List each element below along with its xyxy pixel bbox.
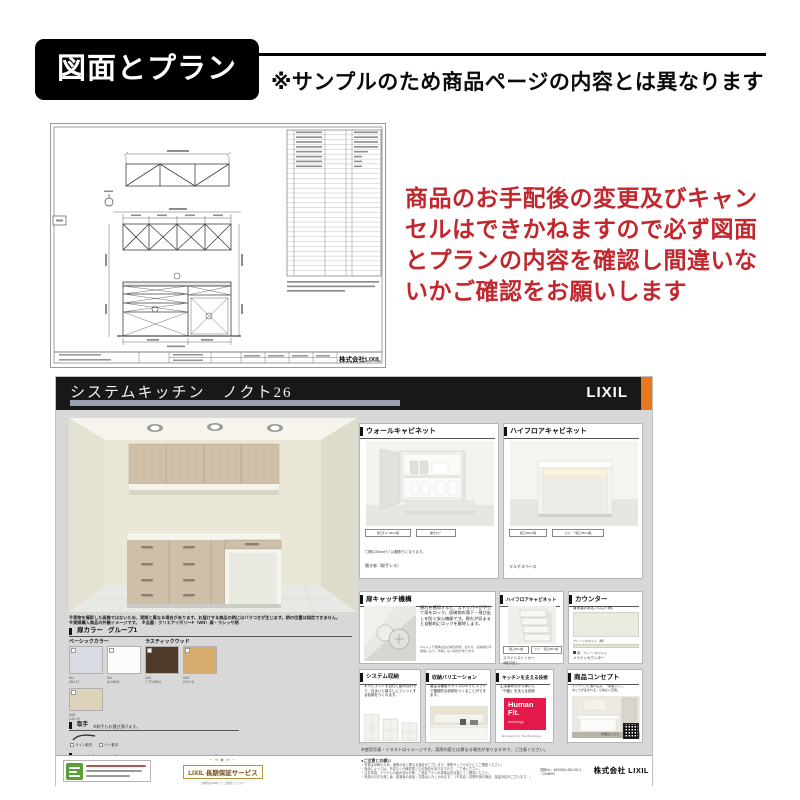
panel-system-storage: システム収納 キャビネットを自在に組み合わせて、住まいと暮らしにフィットする収納… [359,669,421,743]
header-accent-block [641,377,652,410]
counter-lead: 清潔感のあるフロスト柄。 [573,606,615,611]
panel-counter: カウンター 清潔感のあるフロスト柄。 プレーンホワイト（柄） 柄：プレーンホワイ… [568,591,643,664]
handle-option-line: ライン取手 バー取手 [70,743,118,748]
counter-name: プレーンホワイト（柄） [573,639,606,643]
panel-title: ハイフロアキャビネット [510,428,587,436]
handle-title: 取手 [77,722,88,729]
sheet-footnote: ※使用写真・イラストはイメージです。実際内容とは異なる場合がありますので、ご注意… [361,747,649,752]
swatch-checkbox [71,648,76,653]
panel-technology: キッチンを支える技術 生活者研究から導いた 「行動」を支える技術 Human F… [495,669,554,743]
swatch-code: W4(A-NW3) [107,676,119,684]
swatch-code: LW3(10L+2) [69,713,80,721]
door-swatch [69,688,103,711]
handle-checkbox [99,743,103,747]
counter-sub: 柄：プレーンホワイト [573,651,607,655]
page: 図面とプラン ※サンプルのため商品ページの内容とは異なります [0,0,800,800]
render-disclaimer: ※実物を撮影した画像ではないため、実際と異なる場合があります。お届けする商品の柄… [69,615,361,626]
panel-title: カウンター [575,596,608,604]
panel-title: ハイフロアキャビネット [506,597,556,603]
color-dot-icon [573,651,576,654]
panel-storage-variation: 収納バリエーション 豊富な棚板やサイズのキャビネットで機能的な収納をつくることが… [425,669,491,743]
panel-concept: 商品コンセプト インテリアに溶け込み、「家事らく」、 ゆとりが生まれる、心地よい… [567,669,643,743]
lixil-logo: LIXIL [586,384,628,401]
panel-note: 〇間口45cmﾀｲﾌﾟは棚割りになります。 [365,550,426,555]
door-color-group: グループ1 [108,627,137,635]
door-swatch [183,646,217,674]
panel-title: 扉キャッチ機構 [366,596,412,604]
spec-chip: 間口ｻｲｽﾞ45cm幅 [365,529,411,537]
catalog-sheet: システムキッチン ノクト26 LIXIL [55,376,653,786]
title-underline-bar [70,400,400,406]
counter-swatch [573,612,639,637]
swatch-code: W4(W4-T) [69,676,79,684]
variation-photo [430,706,488,740]
panel-note: 4段引出し [503,661,519,666]
door-catch-photo [364,606,416,661]
cad-drawing: 株式会社LIXIL [50,123,386,368]
panel-title: 商品コンセプト [574,674,620,682]
warranty-sub: 詳細はWEBにてご確認ください [159,781,287,785]
warning-line: セルはできかねますので必ず図面 [405,214,775,245]
sample-note: ※サンプルのため商品ページの内容とは異なります [271,66,764,96]
storage-thumbs [364,714,418,741]
handle-header: 取手 ※取手もお選び頂けます。 [69,722,239,731]
swatch-checkbox [147,648,152,653]
panel-body: インテリアに溶け込み、「家事らく」、 ゆとりが生まれる、心地よい空間。 [572,684,640,692]
panel-note: 開き扉（取手レス） [365,563,401,568]
spec-chip: ｽﾗｲﾄﾞ・間口45cm幅 [552,529,604,537]
swatch-code: LW2(10L+1) [183,676,194,684]
door-swatch [69,646,103,674]
panel-title: システム収納 [366,674,399,681]
counter-swatch-bar [573,644,639,648]
door-color-title: 扉カラー [77,627,103,635]
sheet-title: システムキッチン ノクト26 [70,381,293,402]
spec-chip: 間口45cm幅 [503,646,529,654]
eco-badge [63,760,151,782]
category-basic-label: ベーシックカラー [69,639,109,645]
handle-option-label: ライン取手 [75,743,93,747]
human-fit-logo-sub: technology [508,720,542,724]
swatch-checkbox [71,690,76,695]
drawer-stack-photo [508,606,556,644]
eco-text-line [86,775,130,777]
drawing-company-label: 株式会社LIXIL [339,355,381,364]
human-fit-logo-line: Fit. [508,709,542,717]
human-fit-caption: Human Fit Technology [502,734,542,738]
door-color-header: 扉カラー グループ1 [69,627,352,637]
panel-body: 生活者研究から導いた 「行動」を支える技術 [500,684,552,693]
panel-footnote: ※キャッチ機構は扉の開閉状態、揺れ方、収納物の状態等により、作動しない場合があり… [420,645,492,653]
section-banner: 図面とプラン [35,39,259,100]
warning-line: とプランの内容を確認し間違いな [405,245,775,276]
kitchen-render-graphic [69,418,357,612]
warranty-ornament: ─≪◆≫─ [159,757,287,762]
footer-company: 株式会社 LIXIL [594,765,649,776]
panel-wall-cabinet: ウォールキャビネット 間口ｻｲｽﾞ45cm [359,423,499,579]
highfloor-photo [510,441,638,526]
panel-body: 豊富な棚板やサイズのキャビネットで機能的な収納をつくることができます。 [430,684,488,698]
spec-chip: ｽﾗｲﾄﾞ・間口45cm幅 [531,646,562,654]
eco-mark-icon [66,763,83,780]
warning-line: いかご確認をお願いします [405,276,775,307]
render-note-line: ※実際購入商品の外観イメージです。 ※品番：クリエアイボリーF（WN）扉・ラシッ… [69,620,361,625]
handle-note: ※取手もお選び頂けます。 [93,724,140,729]
panel-title: ウォールキャビネット [366,428,436,436]
panel-highfloor-cabinet: ハイフロアキャビネット 間口45cm幅 ｽﾗｲﾄﾞ・間口45cm幅 マルチスペー… [503,423,643,579]
swatch-checkbox [185,648,190,653]
wall-cabinet-photo [366,441,494,526]
spec-chip: 間口45cm幅 [509,529,547,537]
sheet-header: システムキッチン ノクト26 LIXIL [56,377,652,410]
panel-body: 揺れを感知すると、ストッパーが下りて扉をロック。収納物の落下・飛び出しを防ぐ安心… [420,605,492,627]
panel-note: マルチスペース [509,564,537,569]
counter-material: メラミンカウンター [573,656,605,661]
warranty-title: LIXIL 長期保証サービス [183,765,263,779]
sheet-footer: ─≪◆≫─ LIXIL 長期保証サービス 詳細はWEBにてご確認ください ●ご注… [56,756,652,786]
warranty-badge: ─≪◆≫─ LIXIL 長期保証サービス 詳細はWEBにてご確認ください [159,757,287,785]
cad-drawing-graphic: 株式会社LIXIL [51,124,385,367]
warning-line: 商品のお手配後の変更及びキャン [405,183,775,214]
category-rustic-label: ラスティックウッド [145,639,190,645]
handle-checkbox [70,743,74,747]
panel-body: キャビネットを自在に組み合わせて、住まいと暮らしにフィットする収納をつくれます。 [364,684,418,698]
panel-highfloor-drawer: ハイフロアキャビネット 間口45cm幅 ｽﾗｲﾄﾞ・間口45cm幅 スライドスト… [499,591,564,664]
human-fit-logo: Human Fit. technology [504,698,546,730]
estimate-no: 見積No：4800004-482-001-1 （104890） [540,768,582,776]
handle-icon [71,733,97,741]
eco-text-line [86,770,142,772]
swatch-checkbox [109,648,114,653]
qr-code [623,723,639,739]
door-swatch [107,646,141,674]
swatch-code: LW1ﾌﾞﾗｳﾝ(9B4) [145,676,161,684]
eco-text-line [86,765,146,767]
banner-rule [258,53,766,56]
kitchen-render [69,418,357,612]
spec-chip: 開きﾀｲﾌﾟ [416,529,456,537]
panel-door-catch: 扉キャッチ機構 揺れを感知すると、ストッパーが下りて扉をロック。収納物の落下・飛… [359,591,496,664]
door-swatch [145,646,179,674]
panel-title: キッチンを支える技術 [502,675,548,681]
handle-option-label: バー取手 [104,743,118,747]
cancellation-warning: 商品のお手配後の変更及びキャン セルはできかねますので必ず図面 とプランの内容を… [405,183,775,307]
qr-caption: 詳細はこちら [601,732,619,736]
panel-title: 収納バリエーション [432,675,477,681]
